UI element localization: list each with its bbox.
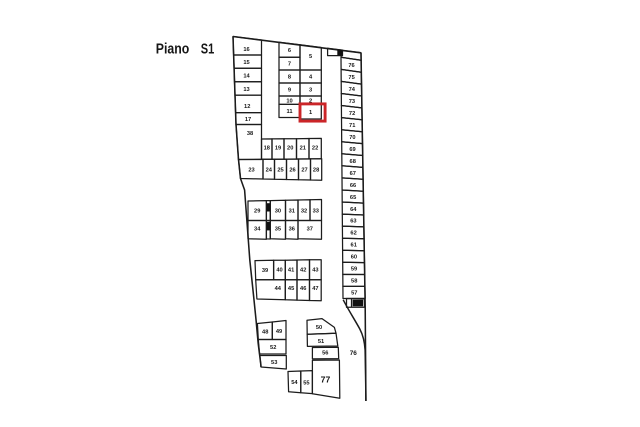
svg-text:68: 68	[350, 159, 356, 165]
svg-text:45: 45	[288, 286, 294, 292]
svg-text:5: 5	[309, 54, 312, 60]
svg-text:55: 55	[303, 380, 309, 386]
svg-text:54: 54	[291, 380, 298, 386]
svg-text:28: 28	[313, 167, 319, 173]
svg-text:37: 37	[307, 227, 313, 233]
svg-text:72: 72	[349, 111, 355, 117]
svg-text:56: 56	[322, 350, 328, 356]
svg-text:26: 26	[289, 167, 295, 173]
svg-text:49: 49	[276, 329, 282, 335]
svg-text:25: 25	[277, 167, 283, 173]
svg-text:43: 43	[312, 268, 318, 274]
svg-text:58: 58	[351, 279, 357, 285]
svg-text:64: 64	[350, 207, 357, 213]
svg-text:46: 46	[300, 286, 306, 292]
svg-text:34: 34	[254, 227, 261, 233]
svg-text:53: 53	[271, 360, 277, 366]
svg-text:10: 10	[286, 98, 292, 104]
svg-text:14: 14	[243, 74, 250, 80]
svg-text:48: 48	[262, 329, 268, 335]
svg-text:8: 8	[288, 75, 291, 81]
svg-text:66: 66	[350, 183, 356, 189]
svg-text:18: 18	[264, 146, 270, 152]
svg-text:76: 76	[348, 63, 354, 69]
svg-text:22: 22	[312, 146, 318, 152]
svg-text:17: 17	[245, 117, 251, 123]
svg-text:23: 23	[248, 167, 254, 173]
svg-text:61: 61	[351, 243, 357, 249]
svg-text:9: 9	[288, 88, 291, 94]
svg-text:38: 38	[247, 131, 253, 137]
svg-text:35: 35	[275, 227, 281, 233]
svg-text:12: 12	[244, 104, 250, 110]
svg-text:67: 67	[350, 171, 356, 177]
svg-text:29: 29	[254, 208, 260, 214]
svg-text:60: 60	[351, 255, 357, 261]
svg-text:3: 3	[309, 88, 312, 94]
svg-text:20: 20	[287, 146, 293, 152]
svg-text:36: 36	[289, 227, 295, 233]
svg-text:63: 63	[350, 219, 356, 225]
svg-text:Piano: Piano	[156, 42, 190, 58]
svg-text:51: 51	[318, 339, 324, 345]
svg-text:32: 32	[301, 208, 307, 214]
svg-text:71: 71	[349, 123, 355, 129]
svg-text:75: 75	[348, 75, 354, 81]
svg-text:73: 73	[349, 99, 355, 105]
svg-text:11: 11	[286, 109, 292, 115]
svg-text:65: 65	[350, 195, 356, 201]
svg-text:19: 19	[275, 146, 281, 152]
svg-text:62: 62	[350, 231, 356, 237]
svg-text:1: 1	[309, 110, 312, 116]
svg-text:21: 21	[300, 146, 306, 152]
svg-text:50: 50	[316, 325, 322, 331]
svg-text:41: 41	[288, 268, 294, 274]
svg-text:77: 77	[321, 375, 331, 385]
svg-text:31: 31	[289, 208, 295, 214]
svg-text:39: 39	[262, 268, 268, 274]
svg-text:6: 6	[288, 48, 291, 54]
svg-text:30: 30	[275, 208, 281, 214]
svg-text:59: 59	[351, 267, 357, 273]
svg-text:69: 69	[349, 147, 355, 153]
svg-text:4: 4	[309, 75, 313, 81]
svg-text:27: 27	[301, 167, 307, 173]
svg-text:57: 57	[351, 291, 357, 297]
svg-text:42: 42	[300, 268, 306, 274]
svg-text:74: 74	[349, 87, 356, 93]
svg-text:16: 16	[243, 47, 249, 53]
svg-text:15: 15	[243, 60, 249, 66]
svg-text:76: 76	[350, 350, 358, 357]
svg-text:13: 13	[243, 87, 249, 93]
svg-text:44: 44	[275, 286, 282, 292]
svg-text:40: 40	[276, 268, 282, 274]
svg-text:70: 70	[349, 135, 355, 141]
svg-text:24: 24	[266, 167, 273, 173]
svg-text:S1: S1	[201, 42, 215, 58]
svg-text:52: 52	[270, 345, 276, 351]
svg-text:7: 7	[288, 62, 291, 68]
svg-text:47: 47	[312, 286, 318, 292]
svg-text:33: 33	[313, 208, 319, 214]
